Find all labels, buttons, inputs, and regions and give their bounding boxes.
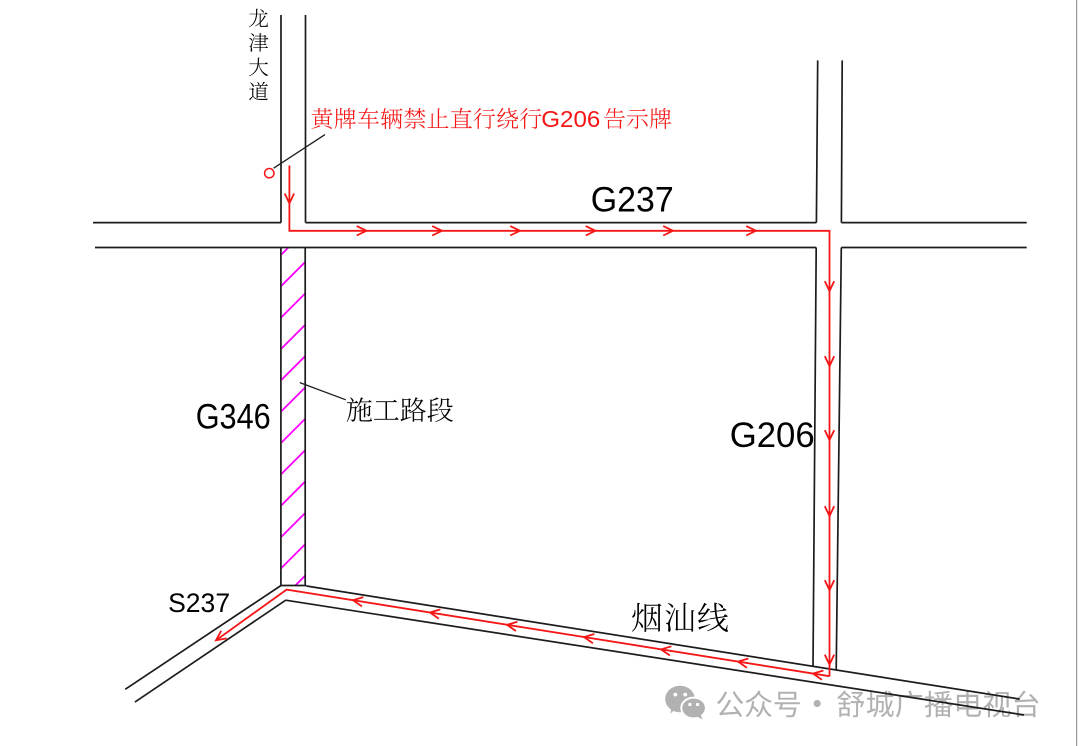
svg-text:G346: G346 [196, 398, 271, 437]
svg-text:G206: G206 [541, 106, 600, 132]
svg-text:G206: G206 [730, 416, 815, 455]
svg-text:S237: S237 [168, 588, 230, 618]
svg-text:G237: G237 [591, 181, 674, 220]
